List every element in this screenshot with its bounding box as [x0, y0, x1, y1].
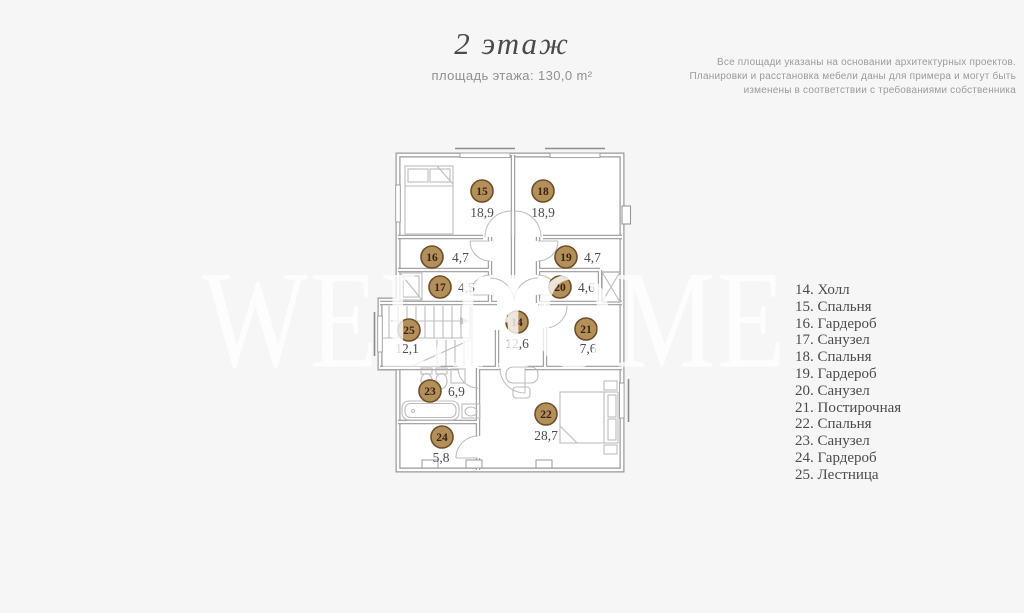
disclaimer: Все площади указаны на основании архитек… — [686, 56, 1016, 98]
room-area: 4,7 — [584, 250, 601, 265]
legend-item: 15. Спальня — [795, 299, 901, 316]
room-number: 15 — [476, 186, 488, 198]
room-area: 6,9 — [448, 384, 465, 399]
room-number: 22 — [540, 409, 552, 421]
legend-item: 24. Гардероб — [795, 450, 901, 467]
room-number: 20 — [554, 282, 566, 294]
room-area: 28,7 — [534, 428, 558, 443]
room-number: 24 — [436, 432, 448, 444]
legend-item: 14. Холл — [795, 282, 901, 299]
room-area: 4,6 — [578, 280, 595, 295]
legend-item: 22. Спальня — [795, 416, 901, 433]
room-number: 17 — [434, 282, 446, 294]
room-number: 19 — [560, 252, 572, 264]
legend-item: 25. Лестница — [795, 467, 901, 484]
legend-item: 19. Гардероб — [795, 366, 901, 383]
shaft — [602, 272, 620, 302]
legend-item: 16. Гардероб — [795, 316, 901, 333]
disclaimer-line: Планировки и расстановка мебели даны для… — [686, 70, 1016, 84]
legend-item: 17. Санузел — [795, 332, 901, 349]
legend-item: 20. Санузел — [795, 383, 901, 400]
room-number: 18 — [537, 186, 549, 198]
disclaimer-line: изменены в соответствии с требованиями с… — [686, 84, 1016, 98]
room-number: 14 — [511, 317, 523, 329]
room-area: 18,9 — [470, 205, 494, 220]
room-area: 7,6 — [580, 341, 597, 356]
room-area: 4,7 — [452, 250, 469, 265]
room-number: 23 — [424, 386, 436, 398]
room-area: 12,1 — [395, 341, 419, 356]
floorplan-page: { "header": { "title": "2 этаж", "subtit… — [0, 0, 1024, 613]
room-number: 25 — [403, 325, 415, 337]
page-title: 2 этаж — [312, 26, 712, 62]
wall-bump — [622, 206, 631, 224]
legend-item: 18. Спальня — [795, 349, 901, 366]
legend-item: 21. Постирочная — [795, 400, 901, 417]
room-area: 18,9 — [531, 205, 555, 220]
room-legend: 14. Холл15. Спальня16. Гардероб17. Сануз… — [795, 282, 901, 484]
room-area: 12,6 — [505, 336, 529, 351]
floor-area-subtitle: площадь этажа: 130,0 m² — [312, 68, 712, 83]
disclaimer-line: Все площади указаны на основании архитек… — [686, 56, 1016, 70]
room-area: 5,8 — [433, 450, 450, 465]
room-area: 4,5 — [458, 280, 475, 295]
room-number: 21 — [580, 324, 592, 336]
legend-item: 23. Санузел — [795, 433, 901, 450]
room-number: 16 — [426, 252, 438, 264]
